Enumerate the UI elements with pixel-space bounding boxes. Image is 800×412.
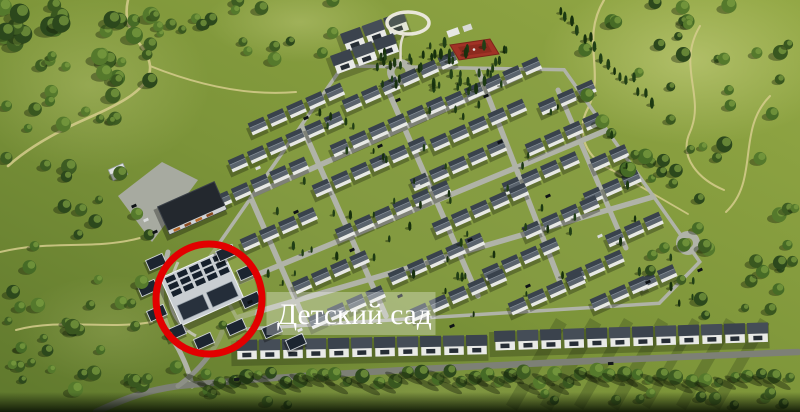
court-mark bbox=[473, 48, 476, 51]
townhouse-window bbox=[546, 342, 555, 347]
cypress-tree bbox=[373, 148, 375, 154]
tree-highlight bbox=[51, 52, 56, 57]
townhouse-roof bbox=[655, 325, 676, 337]
cypress-tree bbox=[381, 80, 384, 88]
tree-highlight bbox=[49, 97, 55, 103]
tree-highlight bbox=[61, 118, 69, 126]
tree-highlight bbox=[722, 138, 731, 147]
cypress-tree bbox=[474, 83, 478, 94]
cypress-tree bbox=[466, 77, 469, 86]
cypress-tree bbox=[599, 53, 603, 64]
masterplan-render: Детский сад bbox=[0, 0, 800, 412]
cypress-tree bbox=[408, 222, 411, 231]
cypress-tree bbox=[335, 251, 338, 260]
cypress-tree bbox=[678, 299, 681, 306]
tree-highlight bbox=[273, 42, 279, 48]
townhouse-window bbox=[730, 336, 739, 341]
tree-highlight bbox=[360, 370, 368, 378]
tree-highlight bbox=[331, 28, 337, 34]
cypress-tree bbox=[464, 47, 468, 58]
cypress-tree bbox=[326, 122, 328, 129]
cypress-tree bbox=[345, 146, 348, 154]
tree-highlight bbox=[760, 369, 766, 375]
tree-highlight bbox=[260, 2, 268, 10]
cypress-tree bbox=[493, 250, 496, 258]
cypress-tree bbox=[444, 288, 446, 294]
tree-highlight bbox=[146, 374, 152, 380]
townhouse-roof bbox=[420, 336, 441, 347]
tree-highlight bbox=[70, 320, 79, 329]
cypress-tree bbox=[498, 56, 501, 65]
townhouse-window bbox=[472, 348, 481, 353]
car bbox=[608, 362, 614, 365]
cypress-tree bbox=[373, 212, 375, 218]
tree-highlight bbox=[49, 86, 56, 93]
tree-highlight bbox=[111, 89, 120, 98]
cypress-tree bbox=[458, 76, 462, 86]
cypress-tree bbox=[610, 130, 613, 139]
cypress-tree bbox=[691, 294, 693, 300]
tree-highlight bbox=[704, 311, 709, 316]
tree-highlight bbox=[269, 368, 275, 374]
tree-highlight bbox=[222, 321, 227, 326]
cypress-tree bbox=[574, 213, 577, 221]
tree-highlight bbox=[703, 240, 710, 247]
cypress-tree bbox=[634, 215, 636, 222]
cypress-tree bbox=[413, 178, 415, 184]
cypress-tree bbox=[451, 56, 454, 64]
tree-highlight bbox=[689, 146, 694, 151]
townhouse-roof bbox=[351, 337, 372, 348]
cypress-tree bbox=[618, 72, 621, 81]
tree-highlight bbox=[486, 368, 494, 376]
bottom-shade bbox=[0, 392, 800, 412]
townhouse-roof bbox=[678, 325, 699, 337]
cypress-tree bbox=[344, 117, 347, 125]
tree-highlight bbox=[761, 266, 768, 273]
townhouse-window bbox=[449, 348, 458, 353]
tree-highlight bbox=[81, 370, 87, 376]
cypress-tree bbox=[373, 253, 376, 261]
townhouse-roof bbox=[701, 324, 722, 336]
tree-highlight bbox=[789, 373, 794, 378]
tree-highlight bbox=[687, 20, 693, 26]
tree-highlight bbox=[5, 153, 12, 160]
tree-highlight bbox=[406, 367, 413, 374]
tree-highlight bbox=[585, 89, 593, 97]
cypress-tree bbox=[276, 207, 279, 216]
townhouse-roof bbox=[563, 328, 584, 340]
cypress-tree bbox=[593, 41, 597, 52]
tree-highlight bbox=[704, 374, 711, 381]
townhouse-roof bbox=[609, 327, 630, 339]
cypress-tree bbox=[430, 53, 433, 61]
cypress-tree bbox=[446, 256, 448, 262]
cypress-tree bbox=[482, 40, 486, 51]
tree-highlight bbox=[140, 276, 148, 284]
cypress-tree bbox=[505, 46, 508, 54]
cypress-tree bbox=[376, 63, 379, 72]
tree-highlight bbox=[44, 160, 50, 166]
tree-highlight bbox=[758, 153, 765, 160]
tree-highlight bbox=[583, 44, 590, 51]
tree-highlight bbox=[22, 376, 27, 381]
tree-highlight bbox=[59, 16, 69, 26]
tree-highlight bbox=[769, 304, 776, 311]
tree-highlight bbox=[175, 361, 182, 368]
tree-highlight bbox=[681, 1, 689, 9]
car bbox=[234, 378, 240, 381]
tree-highlight bbox=[669, 115, 675, 121]
cypress-tree bbox=[460, 272, 463, 281]
tree-highlight bbox=[522, 366, 530, 374]
cypress-tree bbox=[349, 210, 352, 220]
tree-highlight bbox=[3, 24, 13, 34]
cypress-tree bbox=[524, 223, 527, 231]
tree-highlight bbox=[149, 38, 156, 45]
cypress-tree bbox=[692, 277, 695, 285]
cypress-tree bbox=[410, 57, 413, 65]
tree-highlight bbox=[205, 369, 211, 375]
tree-highlight bbox=[73, 383, 81, 391]
townhouse-window bbox=[242, 353, 251, 358]
tree-highlight bbox=[77, 230, 82, 235]
cypress-tree bbox=[443, 37, 447, 48]
tree-highlight bbox=[209, 14, 216, 21]
townhouse-window bbox=[684, 338, 693, 343]
cypress-tree bbox=[669, 282, 672, 291]
tree-highlight bbox=[118, 167, 126, 175]
tree-highlight bbox=[680, 276, 685, 281]
cypress-tree bbox=[433, 49, 436, 59]
tree-highlight bbox=[84, 107, 89, 112]
cypress-tree bbox=[412, 269, 415, 279]
cypress-tree bbox=[449, 197, 451, 204]
cypress-tree bbox=[619, 237, 622, 246]
tree-highlight bbox=[699, 293, 707, 301]
tree-highlight bbox=[157, 22, 163, 28]
tree-highlight bbox=[99, 115, 104, 120]
tree-highlight bbox=[234, 6, 239, 11]
cypress-tree bbox=[382, 153, 385, 161]
cypress-tree bbox=[483, 75, 487, 86]
cypress-tree bbox=[466, 231, 468, 237]
cypress-tree bbox=[626, 181, 629, 190]
tree-highlight bbox=[46, 345, 52, 351]
tree-highlight bbox=[30, 359, 35, 364]
tree-highlight bbox=[132, 28, 142, 38]
tree-highlight bbox=[135, 209, 142, 216]
tree-highlight bbox=[247, 47, 252, 52]
cypress-tree bbox=[384, 52, 387, 61]
tree-highlight bbox=[755, 48, 761, 54]
cypress-tree bbox=[294, 270, 296, 276]
tree-highlight bbox=[649, 266, 655, 272]
cypress-tree bbox=[559, 7, 562, 15]
tree-highlight bbox=[771, 108, 778, 115]
tree-highlight bbox=[772, 370, 780, 378]
tree-highlight bbox=[614, 17, 621, 24]
townhouse-window bbox=[753, 336, 762, 341]
tree-highlight bbox=[595, 364, 603, 372]
townhouse-roof bbox=[305, 338, 326, 349]
cypress-tree bbox=[318, 108, 321, 116]
townhouse-window bbox=[615, 340, 624, 345]
cypress-tree bbox=[454, 105, 457, 113]
cypress-tree bbox=[477, 100, 480, 108]
tree-highlight bbox=[778, 257, 786, 265]
cypress-tree bbox=[385, 155, 388, 163]
townhouse-window bbox=[569, 341, 578, 346]
landscape-ring-path bbox=[387, 12, 429, 34]
cypress-tree bbox=[423, 144, 426, 152]
cypress-tree bbox=[282, 280, 284, 286]
cypress-tree bbox=[419, 62, 422, 71]
cypress-tree bbox=[541, 204, 544, 212]
townhouse-window bbox=[265, 352, 274, 357]
cypress-tree bbox=[606, 59, 610, 70]
cypress-tree bbox=[301, 249, 304, 256]
townhouse-window bbox=[357, 350, 366, 355]
tree-highlight bbox=[130, 299, 135, 304]
cypress-tree bbox=[500, 80, 503, 88]
cypress-tree bbox=[460, 238, 463, 247]
tree-highlight bbox=[791, 257, 797, 263]
tree-highlight bbox=[65, 62, 70, 67]
tree-highlight bbox=[661, 369, 668, 376]
cypress-tree bbox=[494, 57, 497, 66]
townhouse-window bbox=[426, 349, 435, 354]
tree-highlight bbox=[660, 167, 666, 173]
cypress-tree bbox=[459, 70, 462, 78]
cypress-tree bbox=[589, 32, 592, 42]
tree-highlight bbox=[17, 5, 28, 16]
townhouse-roof bbox=[494, 330, 515, 342]
townhouse-window bbox=[311, 351, 320, 356]
townhouse-roof bbox=[540, 329, 561, 341]
cypress-tree bbox=[439, 48, 443, 59]
townhouse-window bbox=[638, 339, 647, 344]
cypress-tree bbox=[563, 12, 567, 22]
tree-highlight bbox=[242, 38, 247, 43]
cypress-tree bbox=[613, 67, 616, 75]
tree-highlight bbox=[11, 286, 19, 294]
tree-highlight bbox=[677, 33, 682, 38]
cypress-tree bbox=[389, 60, 392, 70]
townhouse-window bbox=[403, 349, 412, 354]
tree-highlight bbox=[662, 155, 669, 162]
tree-highlight bbox=[134, 322, 140, 328]
tree-highlight bbox=[200, 20, 206, 26]
tree-highlight bbox=[273, 53, 281, 61]
tree-highlight bbox=[102, 66, 111, 75]
cypress-tree bbox=[546, 225, 549, 233]
cypress-tree bbox=[448, 48, 451, 57]
cypress-tree bbox=[303, 177, 306, 185]
tree-highlight bbox=[681, 48, 689, 56]
cypress-tree bbox=[550, 109, 552, 116]
cypress-tree bbox=[478, 68, 481, 77]
tree-highlight bbox=[27, 124, 32, 129]
townhouse-roof bbox=[397, 336, 418, 347]
cypress-tree bbox=[561, 271, 564, 279]
tree-highlight bbox=[787, 40, 792, 45]
tree-highlight bbox=[148, 74, 156, 82]
townhouse-roof bbox=[747, 322, 768, 334]
tree-highlight bbox=[777, 284, 784, 291]
tree-highlight bbox=[18, 302, 24, 308]
cypress-tree bbox=[445, 163, 447, 170]
tree-highlight bbox=[623, 367, 631, 375]
tree-highlight bbox=[98, 196, 103, 201]
cypress-tree bbox=[491, 64, 494, 73]
tree-highlight bbox=[33, 103, 40, 110]
cypress-tree bbox=[388, 235, 390, 242]
cypress-tree bbox=[448, 190, 451, 198]
tree-highlight bbox=[638, 68, 643, 73]
cypress-tree bbox=[432, 82, 434, 89]
cypress-tree bbox=[456, 272, 459, 281]
tree-highlight bbox=[67, 160, 76, 169]
tree-highlight bbox=[119, 297, 126, 304]
tree-highlight bbox=[115, 75, 122, 82]
cypress-tree bbox=[292, 241, 295, 251]
tree-highlight bbox=[18, 361, 24, 367]
tree-highlight bbox=[674, 371, 682, 379]
cypress-tree bbox=[650, 97, 654, 108]
cypress-tree bbox=[473, 311, 475, 317]
cypress-tree bbox=[569, 227, 572, 236]
tree-highlight bbox=[51, 366, 56, 371]
tree-highlight bbox=[420, 366, 428, 374]
tree-highlight bbox=[744, 304, 749, 309]
tree-highlight bbox=[651, 251, 657, 257]
cypress-tree bbox=[644, 88, 647, 98]
tree-highlight bbox=[33, 242, 38, 247]
tree-highlight bbox=[289, 37, 294, 42]
tree-highlight bbox=[92, 367, 100, 375]
cypress-tree bbox=[464, 273, 466, 279]
tree-highlight bbox=[672, 179, 677, 184]
townhouse-window bbox=[334, 351, 343, 356]
tree-highlight bbox=[333, 368, 340, 375]
cypress-tree bbox=[449, 69, 453, 79]
townhouse-window bbox=[661, 338, 670, 343]
townhouse-window bbox=[500, 344, 509, 349]
cypress-tree bbox=[669, 253, 672, 261]
cypress-tree bbox=[506, 184, 509, 191]
tree-highlight bbox=[634, 151, 639, 156]
cypress-tree bbox=[636, 87, 639, 96]
townhouse-window bbox=[707, 337, 716, 342]
tree-highlight bbox=[89, 301, 94, 306]
townhouse-window bbox=[592, 341, 601, 346]
cypress-tree bbox=[638, 267, 641, 276]
cypress-tree bbox=[557, 104, 559, 110]
masterplan-screenshot: Детский сад bbox=[0, 0, 800, 412]
tree-highlight bbox=[728, 86, 733, 91]
tree-highlight bbox=[97, 276, 102, 281]
townhouse-roof bbox=[443, 335, 464, 346]
cypress-tree bbox=[395, 80, 398, 89]
tree-highlight bbox=[663, 243, 669, 249]
tree-highlight bbox=[698, 194, 704, 200]
tree-highlight bbox=[643, 150, 652, 159]
tree-highlight bbox=[120, 58, 125, 63]
cypress-tree bbox=[310, 246, 312, 253]
tree-highlight bbox=[702, 143, 707, 148]
tree-highlight bbox=[716, 153, 722, 159]
tree-highlight bbox=[7, 317, 11, 321]
tree-highlight bbox=[11, 360, 16, 365]
tree-highlight bbox=[110, 117, 115, 122]
tree-highlight bbox=[99, 346, 104, 351]
townhouse-roof bbox=[517, 330, 538, 342]
tree-highlight bbox=[65, 172, 71, 178]
cypress-tree bbox=[422, 50, 425, 59]
townhouse-window bbox=[523, 343, 532, 348]
tree-highlight bbox=[682, 239, 689, 246]
tree-highlight bbox=[696, 223, 703, 230]
cypress-tree bbox=[393, 58, 396, 68]
cypress-tree bbox=[521, 162, 524, 170]
tree-highlight bbox=[670, 83, 675, 88]
cypress-tree bbox=[393, 198, 395, 204]
cypress-tree bbox=[267, 269, 270, 278]
tree-highlight bbox=[722, 54, 729, 61]
tree-highlight bbox=[79, 204, 86, 211]
cypress-tree bbox=[525, 291, 527, 297]
townhouse-roof bbox=[724, 323, 745, 335]
tree-highlight bbox=[778, 75, 783, 80]
tree-highlight bbox=[94, 215, 102, 223]
cypress-tree bbox=[575, 25, 579, 36]
tree-highlight bbox=[97, 49, 106, 58]
kindergarten-label-text: Детский сад bbox=[277, 299, 432, 331]
tree-highlight bbox=[674, 165, 681, 172]
cypress-tree bbox=[632, 72, 636, 82]
cypress-tree bbox=[329, 112, 332, 121]
townhouse-roof bbox=[259, 339, 280, 350]
tree-highlight bbox=[20, 343, 26, 349]
cypress-tree bbox=[332, 210, 335, 217]
cypress-tree bbox=[429, 42, 432, 49]
cypress-tree bbox=[527, 152, 529, 158]
cypress-tree bbox=[419, 201, 422, 209]
tree-highlight bbox=[170, 19, 176, 25]
tree-highlight bbox=[600, 115, 608, 123]
tree-highlight bbox=[110, 12, 119, 21]
cypress-tree bbox=[391, 75, 393, 82]
townhouse-roof bbox=[466, 335, 487, 346]
cypress-tree bbox=[352, 123, 354, 130]
tree-highlight bbox=[146, 50, 152, 56]
townhouse-window bbox=[380, 350, 389, 355]
tree-highlight bbox=[754, 255, 762, 263]
cypress-tree bbox=[624, 75, 627, 85]
cypress-tree bbox=[462, 113, 465, 120]
cypress-tree bbox=[428, 106, 431, 114]
tree-highlight bbox=[321, 48, 327, 54]
townhouse-roof bbox=[328, 338, 349, 349]
tree-highlight bbox=[43, 335, 48, 340]
cypress-tree bbox=[626, 163, 628, 169]
tree-highlight bbox=[63, 200, 71, 208]
tree-highlight bbox=[1, 0, 11, 9]
tree-highlight bbox=[794, 205, 799, 210]
townhouse-roof bbox=[632, 326, 653, 338]
tree-highlight bbox=[5, 101, 11, 107]
